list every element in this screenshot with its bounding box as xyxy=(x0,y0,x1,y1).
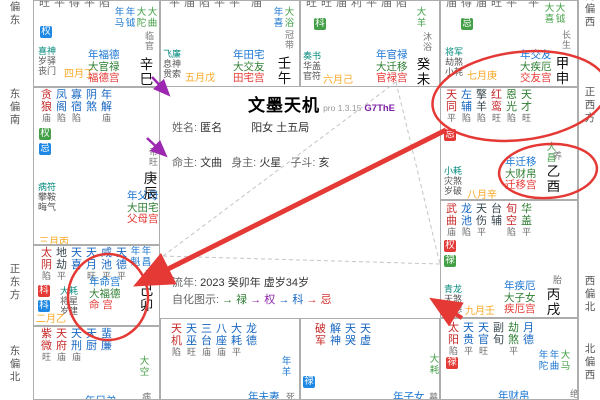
star-brightness: 陷 xyxy=(54,113,69,124)
zihua-label: 自化图示: xyxy=(172,294,219,306)
star: 天刑庙 xyxy=(69,328,84,363)
star-char: 耗 xyxy=(229,335,244,347)
star-char: 天 xyxy=(358,323,373,335)
minor-star: 灾煞 xyxy=(444,176,462,186)
star-char: 盖 xyxy=(519,215,534,227)
star-row: 天机陷天巫旺三台庙八座庙大耗平龙德 xyxy=(169,323,259,358)
star: 天才旺 xyxy=(519,89,534,124)
minor-star: 大耗 xyxy=(60,286,78,296)
star: 天同平 xyxy=(444,89,459,124)
lords-line: 命主: 文曲 身主: 火星 子斗: 亥 xyxy=(172,154,330,170)
star: 台辅 xyxy=(489,203,504,238)
palace-label: 官禄宫 xyxy=(376,73,408,85)
flow-star: 大曲 xyxy=(147,8,158,29)
star-char: 龙 xyxy=(459,203,474,215)
star-char: 哭 xyxy=(343,335,358,347)
lifecycle-stage: 墓 xyxy=(428,392,439,400)
star-char: 年 xyxy=(99,89,114,101)
star: 破军 xyxy=(313,323,328,358)
star: 天官旺 xyxy=(476,322,491,357)
brightness-row-clipped: 庙得庙旺平 平 xyxy=(446,0,543,10)
palace-label: 年财帛 xyxy=(498,391,530,400)
star-char: 劫 xyxy=(506,322,521,334)
palace-label: 疾厄宫 xyxy=(504,304,536,316)
palace-label: 年命宫 xyxy=(89,277,121,289)
palace-yin[interactable]: 紫微旺天府庙天刑庙天厨 蜚廉 大空年兄弟病 xyxy=(33,326,160,400)
lifecycle-stage: 沐浴 xyxy=(422,32,433,52)
app-version: pro 1.3.15 xyxy=(323,103,361,113)
sihua-badges: 权禄 xyxy=(444,240,456,270)
minor-star: 飞廉 xyxy=(163,49,181,59)
star-char: 德 xyxy=(521,334,536,346)
star-char: 天 xyxy=(54,328,69,340)
compass-label: 正西方 xyxy=(584,86,596,125)
palace-wu[interactable]: 平庙陷平平 庙飞廉息神贯索五月戊年喜大浴年田宅大交友田宅宫冠带壬午 xyxy=(160,0,300,87)
star: 天厨 xyxy=(84,328,99,363)
flow-star: 大浴 xyxy=(284,8,295,29)
palace-chen[interactable]: 贪狼庙凤阁陷寡宿陷阴煞 年解庙权忌病符攀鞍晦气三月丙年父母大田宅父母宫帝旺庚辰 xyxy=(33,87,160,245)
sihua-badge-科: 科 xyxy=(38,285,50,297)
star-brightness xyxy=(313,347,328,358)
star-char: 同 xyxy=(444,101,459,113)
flow-stars: 年喜大浴 xyxy=(273,8,295,29)
star-brightness xyxy=(328,347,343,358)
flow-star: 年钺 xyxy=(125,8,136,29)
star-char: 贪 xyxy=(39,89,54,101)
palace-label: 年兄弟 xyxy=(85,396,117,400)
minor-stars: 小耗灾煞岁破 xyxy=(444,166,462,196)
star: 天巫旺 xyxy=(184,323,199,358)
dou-label: 子斗: xyxy=(290,157,315,169)
palace-label: 迁移宫 xyxy=(505,180,537,192)
star-char: 恩 xyxy=(504,89,519,101)
palace-labels: 年官禄大迁移官禄宫 xyxy=(376,50,408,85)
star-row: 天同平左辅陷擎羊陷红鸾旺恩光陷天才旺 xyxy=(444,89,534,124)
star-brightness: 庙 xyxy=(39,113,54,124)
palace-labels: 年交友大疾厄交友宫 xyxy=(520,50,552,85)
star-char: 破 xyxy=(313,323,328,335)
name-line: 姓名: 匿名 阳女 土五局 xyxy=(172,119,309,135)
minor-star: 病符 xyxy=(38,182,56,192)
star-char: 天 xyxy=(84,247,99,259)
star-brightness: 庙 xyxy=(199,347,214,358)
star: 天机陷 xyxy=(169,323,184,358)
star-char: 解 xyxy=(328,323,343,335)
month-label: 八月辛 xyxy=(467,186,497,200)
star-char: 空 xyxy=(504,215,519,227)
brightness-row-clipped: 平庙陷平平 庙 xyxy=(169,0,266,10)
star-char: 德 xyxy=(244,335,259,347)
zihua-line: 自化图示: → 禄 → 权 → 科 → 忌 xyxy=(172,291,332,307)
star-brightness xyxy=(489,227,504,238)
compass-label: 南偏东 xyxy=(9,0,21,27)
star-brightness xyxy=(84,352,99,363)
star-char: 天 xyxy=(476,322,491,334)
star-brightness: 陷 xyxy=(169,347,184,358)
app-title: 文墨天机 xyxy=(248,96,320,115)
star-char: 煞 xyxy=(84,101,99,113)
minor-star: 将军 xyxy=(445,47,463,57)
ming-lord-value: 文曲 xyxy=(200,157,222,169)
star-char: 天 xyxy=(169,323,184,335)
star-brightness: 平 xyxy=(229,347,244,358)
star: 蜚廉 xyxy=(99,328,114,363)
palace-wei[interactable]: 旺旺庙利平庙陷科奏书华盖官符六月己大羊年官禄大迁移官禄宫沐浴癸未 xyxy=(300,0,440,87)
minor-stars: 青龙天煞龙德 xyxy=(444,284,462,314)
star-char: 厨 xyxy=(84,340,99,352)
lifecycle-stage: 衰 xyxy=(144,269,155,279)
minor-star: 青龙 xyxy=(444,284,462,294)
zihua-item: → 禄 xyxy=(222,294,247,306)
star-char: 池 xyxy=(459,215,474,227)
star-brightness: 陷 xyxy=(474,113,489,124)
star-char: 羊 xyxy=(474,101,489,113)
palace-label: 年交友 xyxy=(520,50,552,62)
star: 寡宿陷 xyxy=(69,89,84,124)
star-char: 煞 xyxy=(506,334,521,346)
bureau-value: 土五局 xyxy=(276,122,309,134)
flow-star: 年昌 xyxy=(141,247,152,268)
star-brightness: 平 xyxy=(444,113,459,124)
star: 左辅陷 xyxy=(459,89,474,124)
flow-stars: 大喜大钺 xyxy=(544,4,566,25)
ganzhi: 辛巳 xyxy=(139,57,154,87)
brightness-row-clipped: 旺旺庙利平庙陷 xyxy=(306,0,411,10)
compass-label: 北偏西 xyxy=(584,343,596,382)
star-char: 月 xyxy=(84,259,99,271)
star: 阴煞 xyxy=(84,89,99,124)
star-brightness xyxy=(244,347,259,358)
star-char: 天 xyxy=(184,323,199,335)
sihua-badge-禄: 禄 xyxy=(303,376,315,388)
star-char: 喜 xyxy=(69,259,84,271)
lifecycle-stage: 绝 xyxy=(569,389,578,399)
star-char: 刑 xyxy=(69,340,84,352)
star: 天喜 xyxy=(69,247,84,282)
palace-si[interactable]: 旺平得平陷权喜神岁驿丧门四月丁年马年钺大陀大曲年福德大官禄福德宫临官辛巳 xyxy=(33,0,160,87)
star: 解神 xyxy=(328,323,343,358)
star-brightness: 平 xyxy=(474,227,489,238)
palace-label: 福德宫 xyxy=(88,73,120,85)
star: 大耗平 xyxy=(229,323,244,358)
month-label: 五月戊 xyxy=(185,69,215,84)
flow-star: 大马 xyxy=(560,351,571,372)
star-char: 天 xyxy=(519,89,534,101)
compass-strip-right: 南偏西正西方西偏北北偏西 xyxy=(578,0,600,400)
star-char: 地 xyxy=(54,247,69,259)
lifecycle-stage: 胎 xyxy=(552,275,563,285)
palace-label: 交友宫 xyxy=(520,73,552,85)
star-brightness: 陷 xyxy=(446,346,461,357)
star-char: 旬 xyxy=(504,203,519,215)
star-char: 三 xyxy=(199,323,214,335)
sihua-badges: 禄 xyxy=(303,376,315,391)
sihua-badges: 权 xyxy=(40,26,52,41)
star: 八座庙 xyxy=(214,323,229,358)
star-brightness: 平 xyxy=(461,346,476,357)
gender-value: 阳女 xyxy=(251,122,273,134)
palace-label: 年田宅 xyxy=(233,50,265,62)
star: 月德 xyxy=(521,322,536,357)
star-char: 府 xyxy=(54,340,69,352)
zihua-item: → 权 xyxy=(247,294,275,306)
star: 凤阁陷 xyxy=(54,89,69,124)
minor-star: 贯索 xyxy=(163,69,181,79)
month-label: 七月庚 xyxy=(467,67,497,82)
star: 太阳陷 xyxy=(446,322,461,357)
sihua-badges: 权忌 xyxy=(39,128,51,158)
star-char: 太 xyxy=(39,247,54,259)
star-brightness: 陷 xyxy=(459,113,474,124)
star-brightness: 旺 xyxy=(476,346,491,357)
star-char: 军 xyxy=(313,335,328,347)
flow-star: 年曲 xyxy=(549,351,560,372)
star-brightness xyxy=(99,352,114,363)
flow-star: 年马 xyxy=(114,8,125,29)
minor-stars: 喜神岁驿丧门 xyxy=(38,46,56,76)
star-char: 台 xyxy=(199,335,214,347)
star-char: 德 xyxy=(114,259,129,271)
minor-star: 岁驿 xyxy=(38,56,56,66)
minor-star: 官符 xyxy=(303,71,321,81)
star-char: 鸾 xyxy=(489,101,504,113)
flow-stars: 年魁年昌 xyxy=(130,247,152,268)
star: 贪狼庙 xyxy=(39,89,54,124)
star-char: 紫 xyxy=(39,328,54,340)
star-char: 光 xyxy=(504,101,519,113)
dou-value: 亥 xyxy=(319,157,330,169)
star-char: 曲 xyxy=(444,215,459,227)
palace-labels: 年福德大官禄福德宫 xyxy=(88,50,120,85)
flow-stars: 年陀年曲大马 xyxy=(538,351,571,372)
star: 天伤平 xyxy=(474,203,489,238)
star-char: 华 xyxy=(519,203,534,215)
star-row: 紫微旺天府庙天刑庙天厨 蜚廉 xyxy=(39,328,114,363)
star-char: 副 xyxy=(491,322,506,334)
liunian-value: 2023 癸卯年 xyxy=(200,277,261,289)
zihua-item: → 科 xyxy=(275,294,303,306)
star: 龙德 xyxy=(244,323,259,358)
star: 年解庙 xyxy=(99,89,114,124)
palace-zi[interactable]: 破军 解神 天哭 天虚 禄大耗年子女墓 xyxy=(300,318,440,400)
star-char: 辅 xyxy=(459,101,474,113)
palace-chou[interactable]: 天机陷天巫旺三台庙八座庙大耗平龙德 年羊年夫妻死 xyxy=(160,318,300,400)
star-char: 天 xyxy=(474,203,489,215)
sihua-badge-禄: 禄 xyxy=(444,255,456,267)
palace-label: 年福德 xyxy=(88,50,120,62)
star-brightness: 庙 xyxy=(444,227,459,238)
star-char: 旬 xyxy=(491,334,506,346)
flow-stars: 年羊 xyxy=(281,357,292,378)
star-brightness: 陷 xyxy=(459,227,474,238)
star-char: 天 xyxy=(84,328,99,340)
star-row: 武曲庙龙池陷天伤平台辅 旬空陷华盖平 xyxy=(444,203,534,238)
sihua-badge-忌: 忌 xyxy=(444,129,456,141)
star: 旬空陷 xyxy=(504,203,519,238)
star-char: 寡 xyxy=(69,89,84,101)
month-label: 九月壬 xyxy=(465,302,495,317)
star-char: 左 xyxy=(459,89,474,101)
star-char: 虚 xyxy=(358,335,373,347)
compass-label: 正东方 xyxy=(9,263,21,302)
zihua-item: → 忌 xyxy=(303,294,331,306)
star-char: 狼 xyxy=(39,101,54,113)
minor-star: 喜神 xyxy=(38,46,56,56)
lifecycle-stage: 死 xyxy=(285,392,296,400)
flow-star: 年羊 xyxy=(281,357,292,378)
liunian-line: 流年: 2023 癸卯年 虚岁34岁 xyxy=(172,274,309,290)
star-char: 宿 xyxy=(69,101,84,113)
star-char: 阴 xyxy=(84,89,99,101)
star-brightness: 平 xyxy=(519,227,534,238)
star: 华盖平 xyxy=(519,203,534,238)
star: 红鸾旺 xyxy=(489,89,504,124)
month-label: 二月乙 xyxy=(36,310,66,325)
sihua-badges: 忌 xyxy=(444,129,456,144)
star: 天虚 xyxy=(358,323,373,358)
star-char: 天 xyxy=(343,323,358,335)
palace-label: 年夫妻 xyxy=(248,392,280,400)
liunian-label: 流年: xyxy=(172,277,197,289)
body-lord-value: 火星 xyxy=(259,157,281,169)
palace-you[interactable]: 天同平左辅陷擎羊陷红鸾旺恩光陷天才旺忌小耗灾煞岁破八月辛大昌年迁移大财帛迁移宫养… xyxy=(440,87,578,200)
minor-star: 息神 xyxy=(163,59,181,69)
sihua-badge-忌: 忌 xyxy=(461,18,473,30)
star-brightness: 旺 xyxy=(519,113,534,124)
flow-star: 大羊 xyxy=(416,8,427,29)
lifecycle-stage: 临官 xyxy=(144,31,155,51)
star-char: 红 xyxy=(489,89,504,101)
star-char: 伤 xyxy=(474,215,489,227)
name-value: 匿名 xyxy=(200,122,222,134)
lifecycle-stage: 病 xyxy=(141,392,152,400)
minor-star: 龙德 xyxy=(444,304,462,314)
star-char: 解 xyxy=(99,101,114,113)
star-char: 池 xyxy=(99,259,114,271)
minor-star: 将星 xyxy=(60,296,78,306)
app-title-line: 文墨天机 pro 1.3.15 G7ThE xyxy=(248,91,395,116)
star-char: 座 xyxy=(214,335,229,347)
lifecycle-stage: 帝旺 xyxy=(148,147,159,167)
star-char: 天 xyxy=(69,247,84,259)
star-char: 台 xyxy=(489,203,504,215)
lifecycle-stage: 养 xyxy=(552,151,563,161)
star-char: 天 xyxy=(461,322,476,334)
sihua-badges: 忌 xyxy=(461,18,473,33)
star-char: 天 xyxy=(114,247,129,259)
month-label: 三月丙 xyxy=(39,233,69,245)
compass-strip-left: 南偏东东偏南正东方东偏北 xyxy=(0,0,34,400)
palace-mao[interactable]: 太阴陷地劫平天喜 天月旺咸池平天德平科科大耗将星岁建二月乙年魁年昌年命宫大福德命… xyxy=(33,245,160,326)
ganzhi: 壬午 xyxy=(277,56,292,86)
palace-labels: 年命宫大福德命 宫 xyxy=(89,277,121,312)
flow-star: 大陀 xyxy=(136,8,147,29)
palace-label: 田宅宫 xyxy=(233,73,265,85)
minor-star: 小耗 xyxy=(445,67,463,77)
palace-labels: 年子女 xyxy=(393,392,425,400)
flow-star: 大空 xyxy=(139,357,150,378)
star-char: 擎 xyxy=(474,89,489,101)
star-char: 官 xyxy=(476,334,491,346)
month-label: 六月己 xyxy=(323,71,353,86)
star-brightness xyxy=(358,347,373,358)
sihua-badge-权: 权 xyxy=(39,128,51,140)
minor-star: 天煞 xyxy=(444,294,462,304)
minor-star: 攀鞍 xyxy=(38,192,56,202)
sihua-badge-忌: 忌 xyxy=(39,143,51,155)
star-char: 劫 xyxy=(54,259,69,271)
flow-star: 年魁 xyxy=(130,247,141,268)
palace-hai[interactable]: 太阳陷天贵平天官旺副旬 劫煞平月德 禄年陀年曲大马年财帛绝 xyxy=(440,318,578,400)
minor-star: 小耗 xyxy=(444,166,462,176)
star-char: 微 xyxy=(39,340,54,352)
star-brightness xyxy=(84,113,99,124)
palace-labels: 年迁移大财帛迁移宫 xyxy=(505,157,537,192)
sihua-badge-权: 权 xyxy=(444,240,456,252)
star-char: 贵 xyxy=(461,334,476,346)
star: 天哭 xyxy=(343,323,358,358)
star-brightness: 庙 xyxy=(69,352,84,363)
star-char: 咸 xyxy=(99,247,114,259)
star-char: 八 xyxy=(214,323,229,335)
sihua-badge-权: 权 xyxy=(40,26,52,38)
palace-label: 年迁移 xyxy=(505,157,537,169)
palace-label: 年子女 xyxy=(393,392,425,400)
star-brightness xyxy=(491,346,506,357)
star: 恩光陷 xyxy=(504,89,519,124)
ming-lord-label: 命主: xyxy=(172,157,197,169)
ganzhi: 庚辰 xyxy=(143,171,158,201)
star: 副旬 xyxy=(491,322,506,357)
star-brightness: 庙 xyxy=(54,352,69,363)
star-brightness: 陷 xyxy=(504,227,519,238)
star-brightness xyxy=(343,347,358,358)
star-brightness: 庙 xyxy=(214,347,229,358)
palace-xu[interactable]: 武曲庙龙池陷天伤平台辅 旬空陷华盖平权禄青龙天煞龙德九月壬年疾厄大子女疾厄宫胎丙… xyxy=(440,200,578,318)
brightness-row-clipped: 旺平得平陷 xyxy=(39,0,114,10)
flow-star: 大喜 xyxy=(544,4,555,25)
minor-star: 华盖 xyxy=(303,61,321,71)
star-char: 阴 xyxy=(39,259,54,271)
lifecycle-stage: 长生 xyxy=(561,30,572,50)
minor-stars: 奏书华盖官符 xyxy=(303,51,321,81)
compass-label: 南偏西 xyxy=(584,0,596,29)
star: 紫微旺 xyxy=(39,328,54,363)
palace-shen[interactable]: 庙得庙旺平 平忌将军劫煞小耗七月庚大喜大钺年交友大疾厄交友宫长生甲申 xyxy=(440,0,578,87)
sihua-badges: 科 xyxy=(314,18,326,33)
star-char: 大 xyxy=(229,323,244,335)
star-char: 天 xyxy=(69,328,84,340)
flow-star: 年喜 xyxy=(273,8,284,29)
minor-star: 奏书 xyxy=(303,51,321,61)
sihua-badge-科: 科 xyxy=(314,18,326,30)
star-row: 破军 解神 天哭 天虚 xyxy=(313,323,373,358)
ganzhi: 甲申 xyxy=(555,56,570,86)
star-char: 阳 xyxy=(446,334,461,346)
star: 擎羊陷 xyxy=(474,89,489,124)
palace-labels: 年夫妻 xyxy=(248,392,280,400)
center-info-panel: 文墨天机 pro 1.3.15 G7ThE 姓名: 匿名 阳女 土五局 命主: … xyxy=(160,87,440,318)
star-row: 贪狼庙凤阁陷寡宿陷阴煞 年解庙 xyxy=(39,89,114,124)
star-brightness: 陷 xyxy=(504,113,519,124)
flow-star: 大钺 xyxy=(555,4,566,25)
ziwei-chart: 南偏东东偏南正东方东偏北 南偏西正西方西偏北北偏西 旺平得平陷权喜神岁驿丧门四月… xyxy=(0,0,600,400)
flow-stars: 年马年钺大陀大曲 xyxy=(114,8,158,29)
app-code: G7ThE xyxy=(364,103,395,114)
body-lord-label: 身主: xyxy=(231,157,256,169)
palace-label: 父母宫 xyxy=(127,214,159,226)
star-char: 辅 xyxy=(489,215,504,227)
